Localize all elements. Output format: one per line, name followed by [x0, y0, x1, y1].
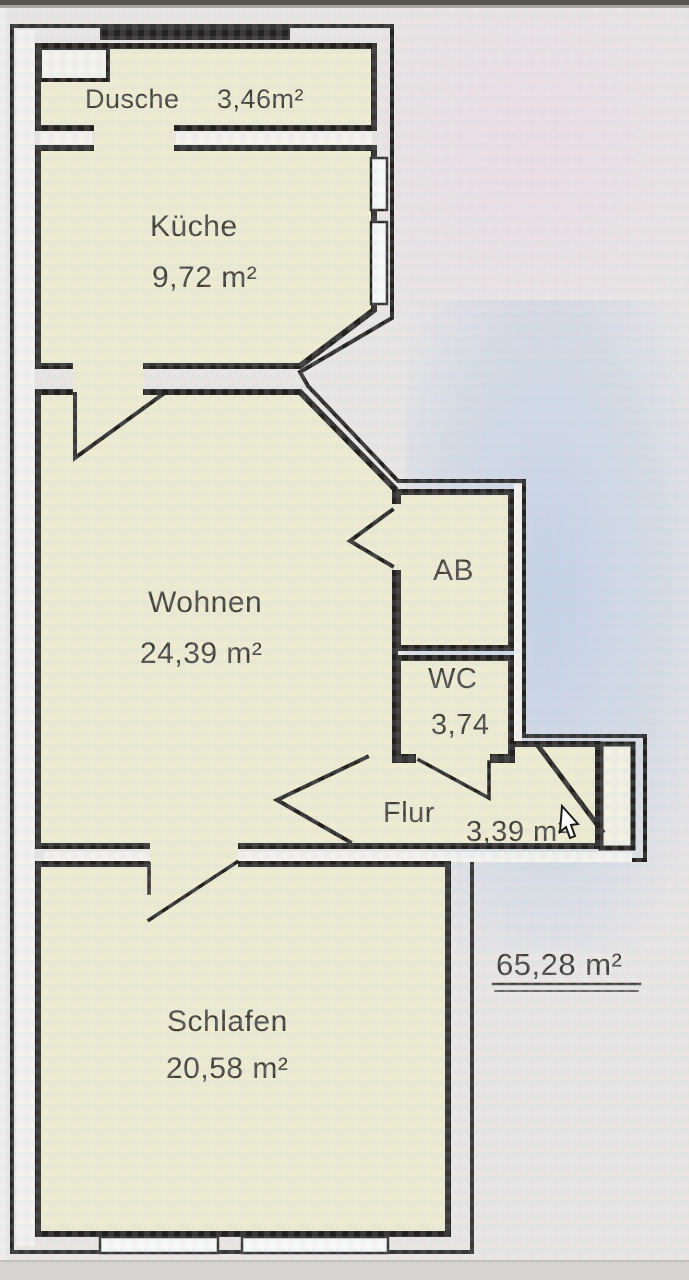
- top-bar-shadow: [0, 5, 689, 8]
- scanned-floor-plan-page: Dusche 3,46m² Küche 9,72 m² Wohnen 24,39…: [0, 0, 689, 1280]
- scan-texture-overlay: [0, 0, 689, 1280]
- floor-plan-image: Dusche 3,46m² Küche 9,72 m² Wohnen 24,39…: [0, 0, 689, 1280]
- top-dark-bar: [0, 0, 689, 5]
- bottom-strip: [0, 1261, 689, 1280]
